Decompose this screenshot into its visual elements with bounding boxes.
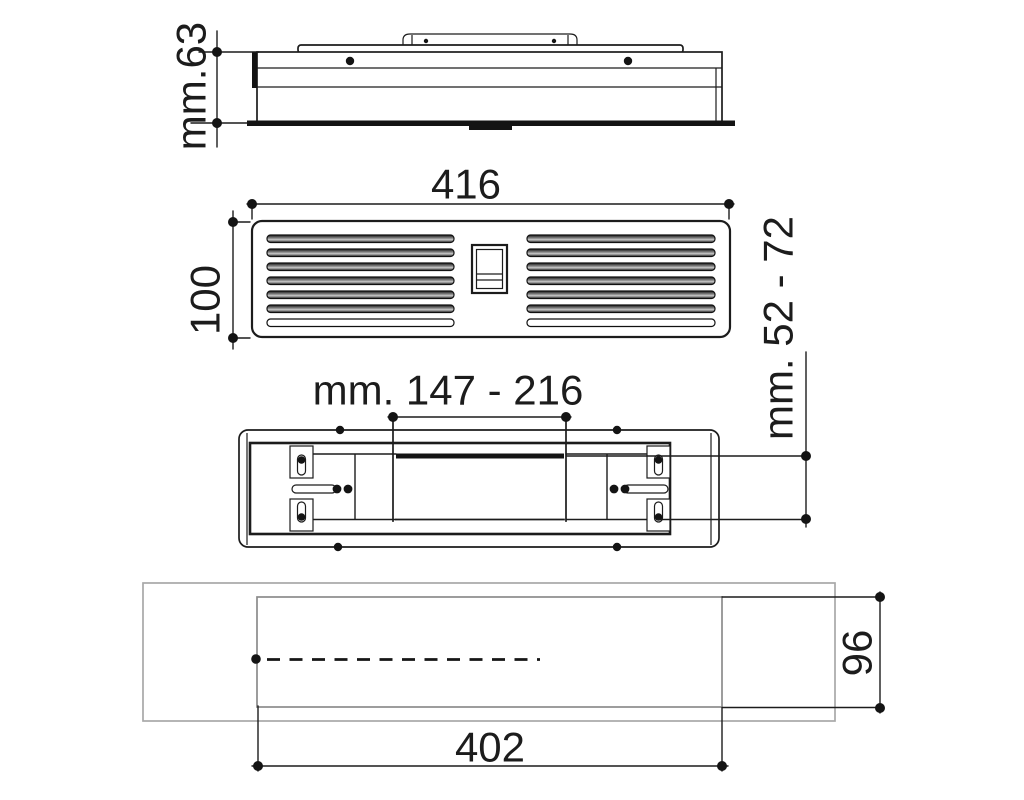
technical-drawing-page: mm.63 (0, 0, 1024, 800)
louvre-slats-left (267, 235, 454, 327)
dim-depth-63-label: mm.63 (168, 22, 215, 150)
dim-depth-52-72-label: mm. 52 - 72 (755, 216, 802, 440)
dim-span-147-216-label: mm. 147 - 216 (313, 367, 584, 414)
dim-span-147-216: mm. 147 - 216 (313, 367, 584, 423)
front-grille-view: 416 100 (182, 161, 735, 350)
cutout-template-view: 96 402 (143, 583, 885, 771)
louvre-slats-right (527, 235, 715, 327)
dim-height-100-label: 100 (182, 265, 229, 335)
dim-width-416: 416 (247, 161, 734, 220)
fixing-screw-left (346, 57, 354, 65)
dim-cutout-height-96-label: 96 (834, 630, 881, 677)
bottom-flange (247, 121, 735, 127)
dim-width-416-label: 416 (431, 161, 501, 208)
opening-top-edge (396, 454, 564, 459)
dim-height-100: 100 (182, 211, 251, 349)
power-switch (472, 245, 507, 293)
cutout-opening (257, 597, 722, 707)
dim-cutout-width-402-label: 402 (455, 724, 525, 771)
side-profile-view: mm.63 (168, 22, 736, 150)
fixing-screw-right (624, 57, 632, 65)
dim-depth-63: mm.63 (168, 22, 260, 150)
drawing-canvas: mm.63 (0, 0, 1024, 800)
